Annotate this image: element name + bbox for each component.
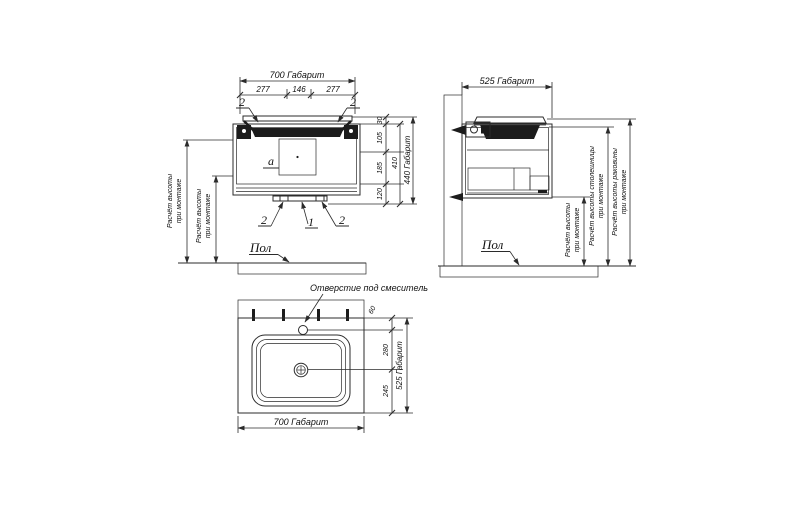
side-basin-label-b: при монтаже bbox=[621, 170, 628, 215]
front-top-callouts: 2 2 bbox=[236, 95, 360, 122]
front-width-seg2: 146 bbox=[292, 85, 306, 94]
top-depth-dimensions: 60 280 245 525 Габарит bbox=[308, 305, 414, 416]
side-mount-label-b: при монтаже bbox=[574, 208, 581, 253]
side-counter-label-a: Расчёт высоты столешницы bbox=[589, 145, 596, 246]
side-basin-label-a: Расчёт высоты раковины bbox=[612, 147, 619, 236]
front-width-total: 700 Габарит bbox=[270, 70, 325, 80]
siphon-crosshatch-area bbox=[279, 139, 316, 175]
dim-60: 60 bbox=[368, 305, 378, 315]
side-counter-label-b: при монтаже bbox=[598, 174, 605, 219]
front-height-total: 440 Габарит bbox=[403, 135, 412, 184]
side-mount-label-a: Расчёт высоты bbox=[565, 202, 572, 257]
callout-2-top-right: 2 bbox=[350, 95, 356, 109]
side-mount-dimensions: Расчёт высоты при монтаже Расчёт высоты … bbox=[547, 119, 636, 266]
wall-hatch bbox=[444, 95, 462, 266]
top-view: Отверстие под смеситель bbox=[238, 283, 428, 433]
faucet-hole bbox=[299, 326, 308, 335]
callout-2-top-left: 2 bbox=[239, 95, 245, 109]
side-view: 525 Габарит Расчёт высоты при монтаже Ра… bbox=[438, 76, 636, 277]
dim-185: 185 bbox=[377, 162, 384, 174]
side-depth-total: 525 Габарит bbox=[480, 76, 535, 86]
area-label-a: а bbox=[268, 154, 274, 168]
dim-280: 280 bbox=[383, 344, 390, 357]
dim-245: 245 bbox=[383, 385, 390, 398]
front-width-dimensions: 700 Габарит 277 146 277 bbox=[237, 70, 358, 114]
callout-2-bottom-right: 2 bbox=[339, 213, 345, 227]
drawing-canvas: а 700 Габарит 277 146 277 2 bbox=[0, 0, 800, 512]
top-wall-hatch bbox=[238, 300, 364, 318]
faucet-hole-label: Отверстие под смеситель bbox=[310, 283, 428, 293]
mount-height-label-1b: при монтаже bbox=[176, 179, 183, 224]
dim-410: 410 bbox=[392, 157, 399, 169]
front-view: а 700 Габарит 277 146 277 2 bbox=[167, 70, 417, 274]
side-floor: Пол bbox=[438, 237, 636, 277]
technical-drawing: а 700 Габарит 277 146 277 2 bbox=[0, 0, 800, 512]
front-bottom-callouts: 2 1 2 bbox=[258, 202, 349, 229]
mount-height-label-2b: при монтаже bbox=[205, 194, 212, 239]
mount-height-label-2a: Расчёт высоты bbox=[196, 188, 203, 243]
dim-30: 30 bbox=[377, 117, 384, 125]
side-floor-label: Пол bbox=[481, 237, 504, 252]
front-floor: Пол bbox=[178, 240, 366, 274]
drain bbox=[294, 363, 308, 377]
side-depth-dimension: 525 Габарит bbox=[462, 76, 552, 118]
dim-120: 120 bbox=[377, 188, 384, 200]
front-floor-label: Пол bbox=[249, 240, 272, 255]
dim-105: 105 bbox=[377, 132, 384, 144]
bottom-bracket bbox=[273, 196, 327, 201]
front-mount-dimensions: Расчёт высоты при монтаже Расчёт высоты … bbox=[167, 140, 233, 263]
wall-anchor-ticks bbox=[252, 309, 349, 321]
top-width-dimension: 700 Габарит bbox=[238, 416, 364, 433]
callout-2-bottom-left: 2 bbox=[261, 213, 267, 227]
front-floor-hatch bbox=[238, 263, 366, 274]
top-width-total: 700 Габарит bbox=[274, 417, 329, 427]
side-floor-hatch bbox=[440, 266, 598, 277]
callout-1-bottom-center: 1 bbox=[308, 215, 314, 229]
front-width-seg3: 277 bbox=[325, 85, 340, 94]
mount-height-label-1a: Расчёт высоты bbox=[167, 173, 174, 228]
front-height-dimensions: 30 105 185 120 410 440 Габарит bbox=[328, 114, 417, 207]
top-depth-total: 525 Габарит bbox=[395, 341, 404, 390]
lower-wall-anchor bbox=[449, 193, 463, 201]
front-width-seg1: 277 bbox=[255, 85, 270, 94]
